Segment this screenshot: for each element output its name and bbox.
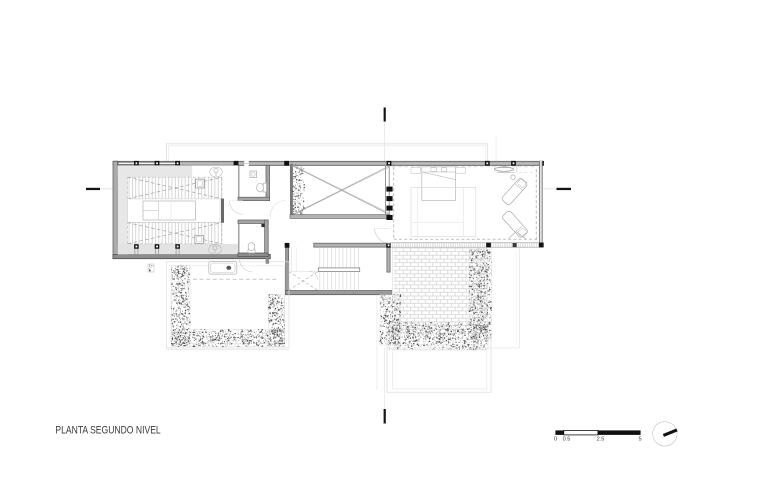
svg-text:PLANTA SEGUNDO NIVEL: PLANTA SEGUNDO NIVEL xyxy=(55,424,160,436)
svg-text:0.5: 0.5 xyxy=(563,437,571,443)
svg-text:2.5: 2.5 xyxy=(597,437,605,443)
svg-text:5: 5 xyxy=(638,437,641,443)
svg-text:0: 0 xyxy=(554,437,557,443)
